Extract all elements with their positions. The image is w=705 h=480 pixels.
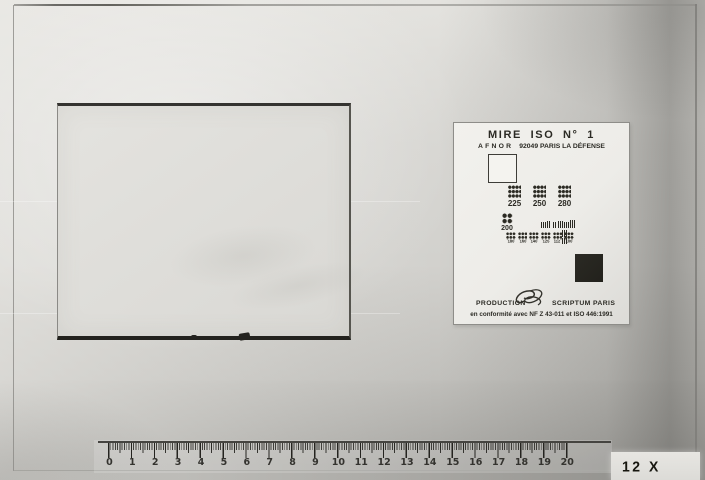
scan-frame-right-line [695, 4, 697, 480]
dot-pattern [508, 185, 521, 198]
resolution-value: 250 [530, 199, 549, 208]
resolution-pattern: 140 [529, 232, 539, 246]
resolution-bars-pattern [541, 222, 546, 229]
ruler-number: 1 [121, 457, 144, 468]
ruler-number: 4 [190, 457, 213, 468]
resolution-bars-pattern [553, 222, 558, 229]
resolution-value: 280 [555, 199, 574, 208]
ruler-numbers: 01234567891011121314151617181920 [98, 457, 579, 468]
dot-pattern [558, 185, 571, 198]
ruler-number: 14 [418, 457, 441, 468]
white-reference-square [488, 154, 517, 183]
ruler-number: 13 [396, 457, 419, 468]
afnor-label: AFNOR [478, 143, 513, 150]
resolution-value: 160 [519, 240, 526, 244]
ruler-number: 16 [464, 457, 487, 468]
resolution-pattern: 100 [564, 232, 574, 246]
scan-frame-top-line [14, 4, 697, 6]
resolution-value: 180 [508, 240, 515, 244]
dot-pattern [518, 232, 528, 240]
afnor-address: 92049 PARIS LA DÉFENSE [519, 143, 605, 150]
resolution-bars-row [541, 220, 575, 228]
ruler-number: 6 [235, 457, 258, 468]
resolution-value: 100 [566, 240, 573, 244]
ruler-number: 5 [212, 457, 235, 468]
ruler-number: 2 [144, 457, 167, 468]
dot-pattern [553, 232, 563, 240]
ruler-cm-ticks [108, 443, 570, 458]
resolution-pattern-row-3: 180 160 140 125 112 100 [506, 232, 574, 246]
dot-pattern [564, 232, 574, 240]
dot-pattern [533, 185, 546, 198]
resolution-pattern-row-1: 225 250 280 [505, 185, 574, 208]
dot-pattern [506, 232, 516, 240]
ruler-number: 15 [441, 457, 464, 468]
test-card-subtitle: AFNOR92049 PARIS LA DÉFENSE [454, 143, 629, 150]
microfilm-scan-photo: MIRE ISO N° 1 AFNOR92049 PARIS LA DÉFENS… [0, 0, 705, 480]
resolution-bars-pattern [564, 222, 569, 229]
ruler-number: 20 [556, 457, 579, 468]
resolution-value: 225 [505, 199, 524, 208]
resolution-pattern: 180 [506, 232, 516, 246]
magnification-label: 12 X [622, 458, 661, 475]
resolution-value: 140 [531, 240, 538, 244]
scriptum-logo-icon [510, 287, 548, 309]
ruler-number: 10 [327, 457, 350, 468]
ruler-number: 7 [258, 457, 281, 468]
mire-iso-test-card: MIRE ISO N° 1 AFNOR92049 PARIS LA DÉFENS… [453, 122, 630, 325]
ruler-number: 17 [487, 457, 510, 468]
ruler-number: 8 [281, 457, 304, 468]
ruler-number: 0 [98, 457, 121, 468]
ruler-number: 11 [350, 457, 373, 468]
ruler-number: 19 [533, 457, 556, 468]
resolution-pattern: 160 [518, 232, 528, 246]
empty-specimen-frame [57, 103, 351, 340]
test-card-title: MIRE ISO N° 1 [454, 129, 629, 141]
dot-pattern [502, 213, 513, 224]
scan-frame-left-line [13, 5, 14, 471]
resolution-bars-pattern [570, 220, 575, 228]
dot-pattern [541, 232, 551, 240]
magnification-tag: 12 X [611, 452, 700, 480]
resolution-value: 200 [498, 225, 516, 232]
dot-pattern [529, 232, 539, 240]
ruler-number: 18 [510, 457, 533, 468]
edge-mark [238, 332, 250, 341]
ruler-number: 9 [304, 457, 327, 468]
resolution-bars-pattern [558, 221, 563, 229]
resolution-pattern: 225 [505, 185, 524, 208]
resolution-pattern: 112 [552, 232, 562, 246]
ruler-number: 12 [373, 457, 396, 468]
resolution-pattern: 280 [555, 185, 574, 208]
resolution-pattern: 250 [530, 185, 549, 208]
resolution-pattern: 125 [541, 232, 551, 246]
conformity-statement: en conformité avec NF Z 43-011 et ISO 44… [454, 311, 629, 318]
black-reference-square [575, 254, 603, 282]
resolution-pattern-200: 200 [498, 213, 516, 232]
producer-label: SCRIPTUM PARIS [552, 300, 615, 307]
resolution-value: 125 [542, 240, 549, 244]
resolution-bars-pattern [547, 221, 552, 229]
edge-mark [191, 335, 197, 339]
resolution-value: 112 [554, 240, 561, 244]
ruler-number: 3 [167, 457, 190, 468]
